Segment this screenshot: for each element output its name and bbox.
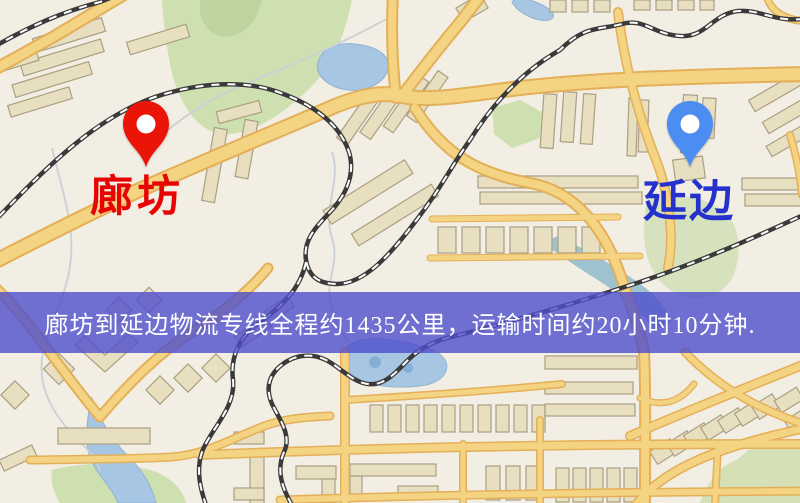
origin-city-label: 廊坊 [90, 176, 184, 219]
map-view[interactable]: 廊坊 延边 廊坊到延边物流专线全程约1435公里，运输时间约20小时10分钟. [0, 0, 800, 503]
pin-shape [123, 101, 169, 167]
pin-shape [667, 101, 713, 167]
map-canvas [0, 0, 800, 503]
pin-hole [681, 115, 700, 134]
pin-hole [137, 115, 156, 134]
origin-pin-icon[interactable] [121, 100, 171, 168]
destination-city-label: 延边 [643, 180, 735, 224]
route-info-banner: 廊坊到延边物流专线全程约1435公里，运输时间约20小时10分钟. [0, 292, 800, 353]
route-info-text: 廊坊到延边物流专线全程约1435公里，运输时间约20小时10分钟. [45, 305, 756, 340]
destination-pin-icon[interactable] [665, 100, 715, 168]
